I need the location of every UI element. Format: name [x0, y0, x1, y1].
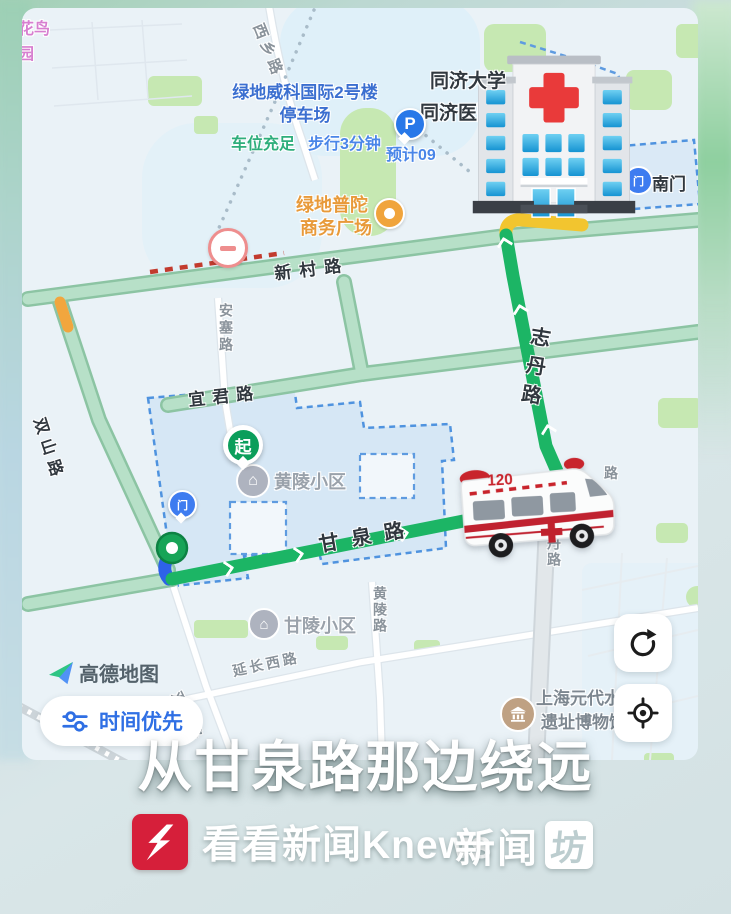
compound-gate-marker: 门 — [168, 490, 197, 522]
eta-label: 预计09 — [386, 141, 436, 165]
gate-label-south: 南门 — [652, 170, 686, 195]
poi-label-huaniao: 花鸟 — [22, 15, 50, 39]
xinwenfang-text: 新闻 — [455, 816, 539, 874]
parking-marker[interactable]: P — [394, 108, 426, 143]
ambulance-icon: 120 — [447, 443, 631, 565]
walk-time-label: 步行3分钟 — [308, 130, 381, 154]
xinwenfang-box-glyph: 坊 — [549, 820, 589, 871]
poi-label-parking-name: 绿地威科国际2号楼 — [190, 78, 420, 103]
amap-watermark: 高德地图 — [48, 658, 159, 687]
route-start-marker: 起 — [223, 425, 263, 468]
screenshot-stage: 花鸟 园 西乡路 绿地威科国际2号楼 停车场 车位充足 步行3分钟 预计09 同… — [0, 0, 731, 914]
xinwenfang-box-icon: 坊 — [545, 821, 593, 869]
sliders-icon — [60, 708, 90, 734]
no-entry-sign-icon — [208, 228, 248, 268]
poi-label-parking-name: 停车场 — [190, 101, 420, 126]
road-label-huangling: 黄陵路 — [370, 586, 390, 634]
map-canvas[interactable]: 花鸟 园 西乡路 绿地威科国际2号楼 停车场 车位充足 步行3分钟 预计09 同… — [22, 8, 698, 760]
residential-icon: ⌂ — [248, 608, 280, 640]
video-caption: 从甘泉路那边绕远 — [137, 722, 593, 802]
svg-text:120: 120 — [487, 472, 513, 490]
poi-label-plaza: 商务广场 — [300, 214, 372, 240]
refresh-icon — [626, 626, 660, 660]
plaza-icon[interactable] — [374, 198, 405, 229]
footer-brands: 看看新闻Knews 新闻 坊 — [0, 812, 731, 882]
parking-p-icon: P — [394, 108, 426, 140]
amap-logo-icon — [48, 661, 74, 685]
locate-me-button[interactable] — [614, 684, 672, 742]
poi-label-ganling-compound: 甘陵小区 — [284, 612, 356, 638]
amap-watermark-text: 高德地图 — [79, 658, 159, 687]
xinwenfang-logo: 新闻 坊 — [455, 816, 593, 874]
background-gradient-right — [693, 0, 731, 460]
road-label-ansai: 安塞路 — [216, 303, 236, 354]
knews-logo-text: 看看新闻Knews — [202, 814, 493, 870]
knews-logo: 看看新闻Knews — [132, 814, 493, 870]
knews-logo-icon — [132, 814, 188, 870]
poi-label-huaniao: 园 — [22, 40, 34, 64]
parking-status-label: 车位充足 — [231, 130, 295, 154]
locate-target-icon — [626, 696, 660, 730]
refresh-route-button[interactable] — [614, 614, 672, 672]
poi-label-huangling-compound: 黄陵小区 — [274, 468, 346, 494]
poi-label-hospital: 同济大学 — [430, 66, 506, 93]
